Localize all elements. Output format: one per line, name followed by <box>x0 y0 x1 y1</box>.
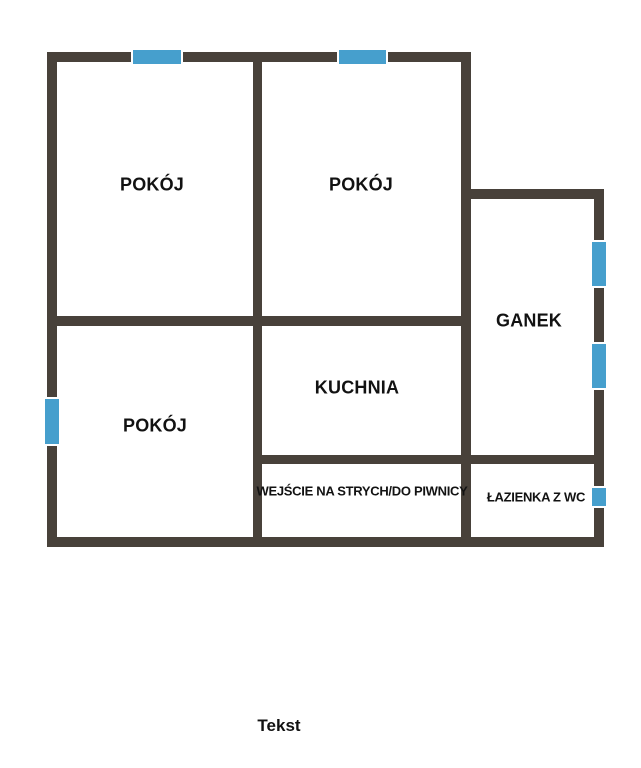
window-porch-upper <box>592 240 606 288</box>
room-label-ganek: GANEK <box>496 311 562 332</box>
window-bathroom <box>592 486 606 508</box>
room-label-kuchnia: KUCHNIA <box>315 378 399 399</box>
partition-vertical-left <box>253 52 262 546</box>
outer-bottom-wall <box>47 537 604 547</box>
partition-vertical-right <box>461 52 471 546</box>
window-left-bottom-room <box>45 397 59 446</box>
outer-left-wall <box>47 52 57 546</box>
room-label-lazienka: ŁAZIENKA Z WC <box>487 490 585 505</box>
room-label-pokoj-bottom-left: POKÓJ <box>123 416 187 437</box>
window-top-middle-room <box>337 50 388 64</box>
room-label-wejscie: WEJŚCIE NA STRYCH/DO PIWNICY <box>257 484 468 499</box>
window-porch-lower <box>592 342 606 390</box>
porch-top-wall <box>461 189 604 199</box>
floor-plan: POKÓJPOKÓJGANEKKUCHNIAPOKÓJWEJŚCIE NA ST… <box>0 0 641 768</box>
room-label-pokoj-top-middle: POKÓJ <box>329 175 393 196</box>
partition-horizontal-lower <box>253 455 604 464</box>
room-label-pokoj-top-left: POKÓJ <box>120 175 184 196</box>
partition-horizontal-upper <box>47 316 471 326</box>
caption-text: Tekst <box>257 716 300 736</box>
window-top-left-room <box>131 50 183 64</box>
